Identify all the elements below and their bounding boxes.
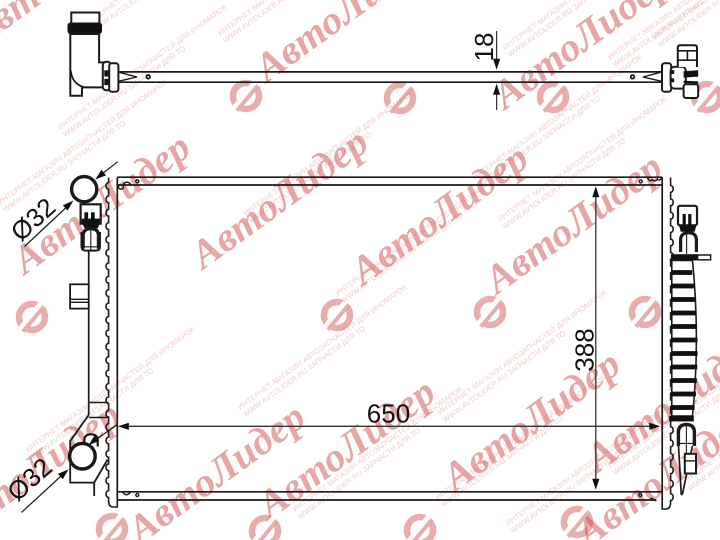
svg-text:388: 388 xyxy=(570,328,600,371)
svg-text:650: 650 xyxy=(367,399,410,429)
svg-text:ИНТЕРНЕТ-МАГАЗИН АВТОЗАПЧАСТЕЙ: ИНТЕРНЕТ-МАГАЗИН АВТОЗАПЧАСТЕЙ ДЛЯ ИНОМА… xyxy=(242,88,415,217)
svg-text:18: 18 xyxy=(469,33,499,62)
svg-text:WWW.AVTOLIDER.RU ЗАПЧАСТИ ДЛ: WWW.AVTOLIDER.RU ЗАПЧАСТИ ДЛЯ ТО xyxy=(241,324,367,419)
svg-text:ИНТЕРНЕТ-МАГАЗИН АВТОЗАПЧАСТЕЙ: ИНТЕРНЕТ-МАГАЗИН АВТОЗАПЧАСТЕЙ ДЛЯ ИНОМА… xyxy=(334,168,507,297)
svg-text:АвтоЛидер: АвтоЛидер xyxy=(243,0,440,92)
